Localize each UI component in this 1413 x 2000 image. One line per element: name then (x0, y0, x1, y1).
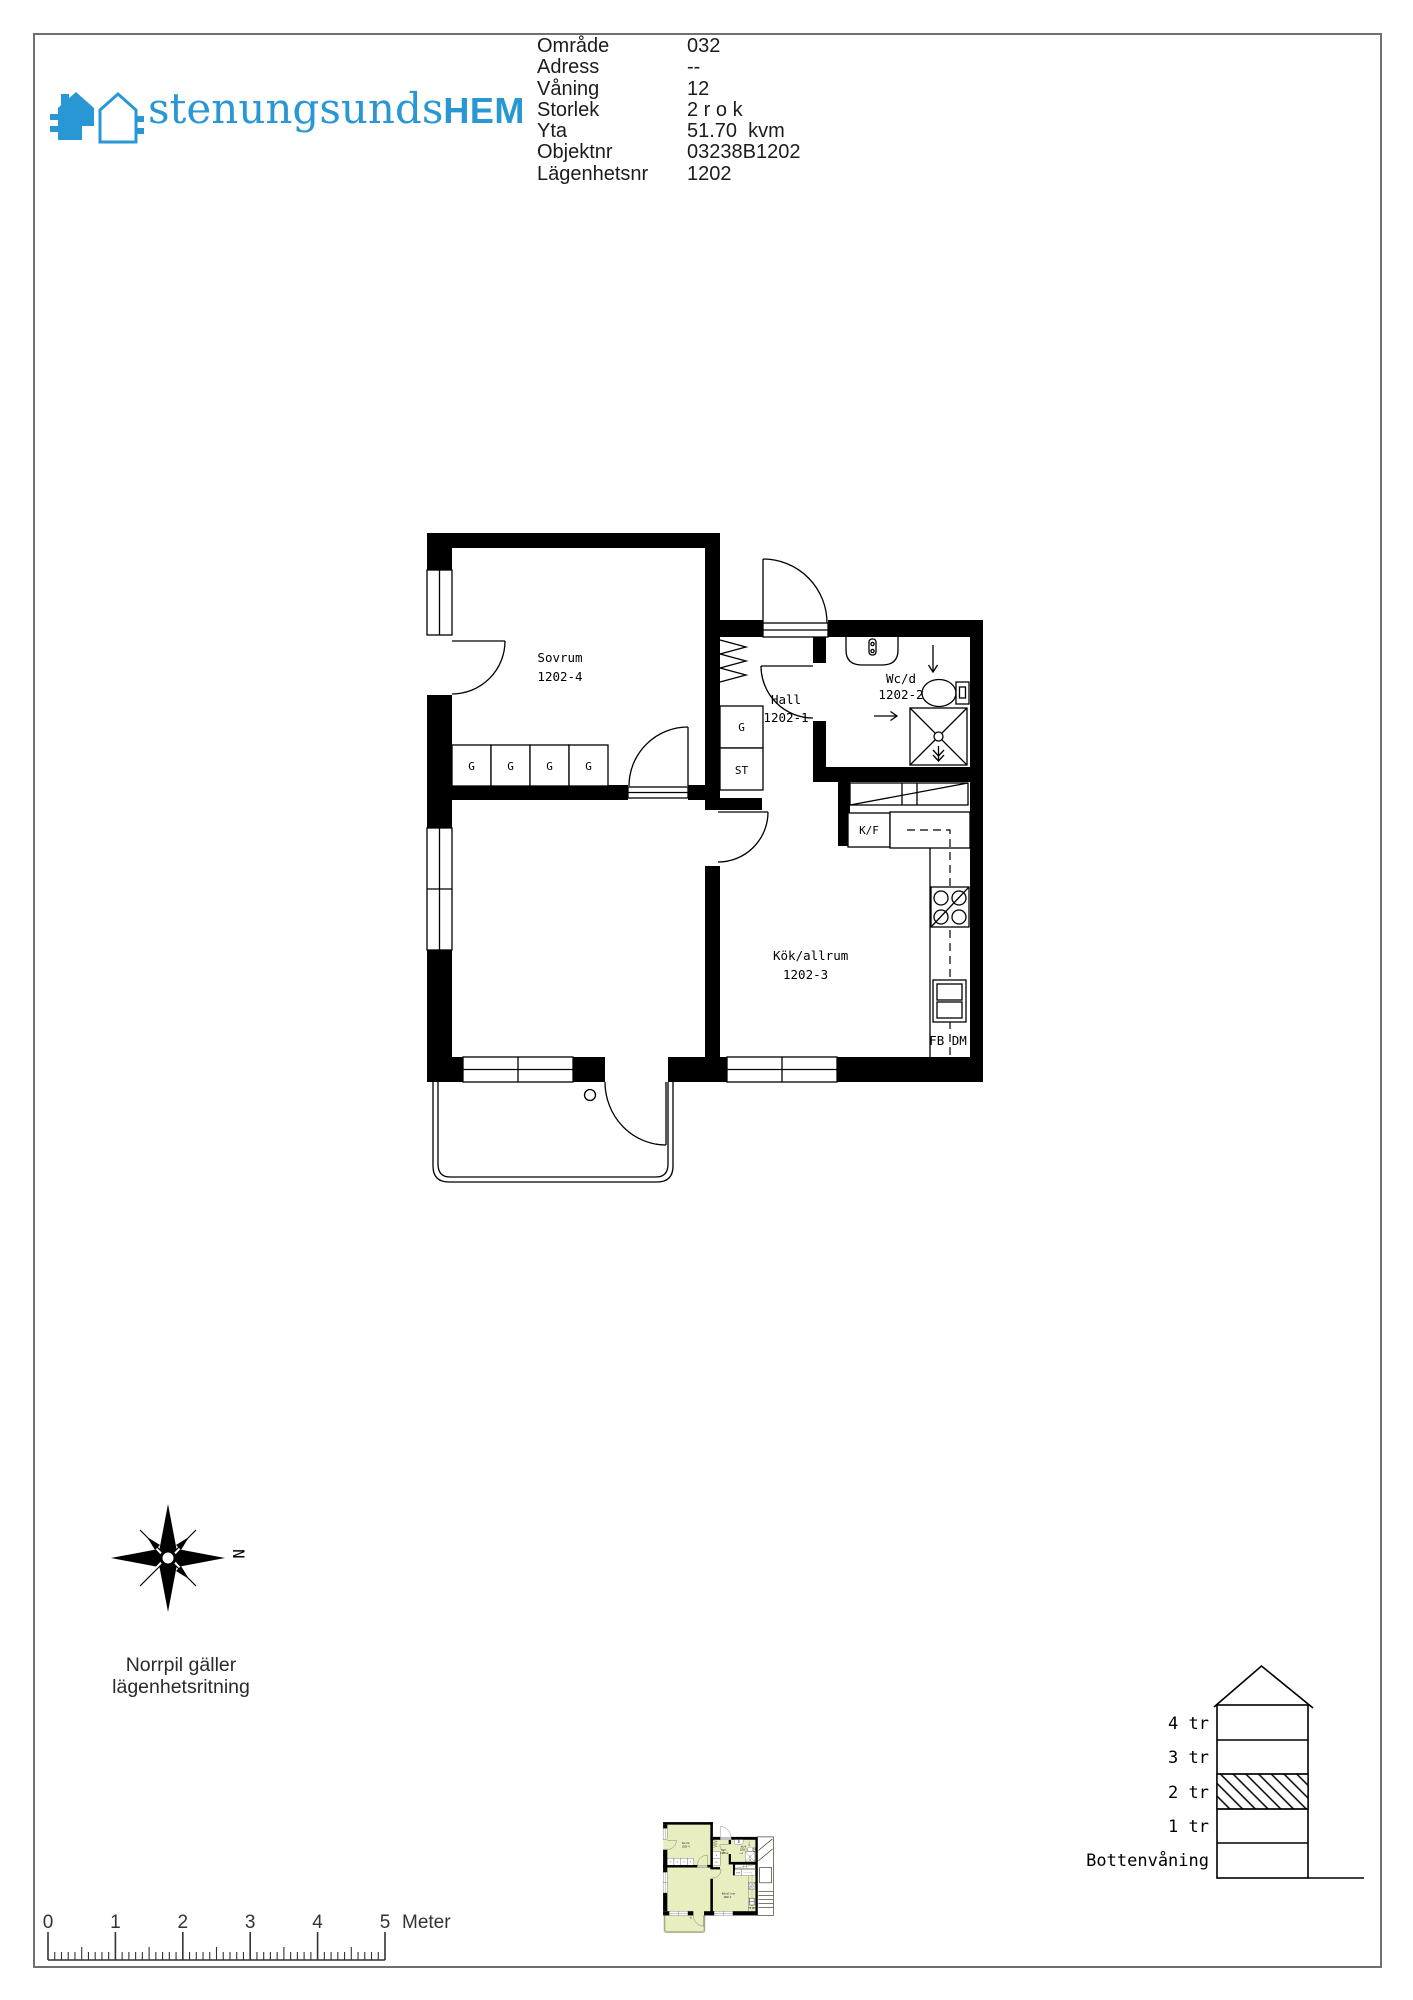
current-floor-hatched (1217, 1774, 1308, 1809)
floor-label-3tr: 3 tr (1168, 1748, 1209, 1768)
scale-bar: 0 1 2 3 4 5 Meter (43, 1912, 452, 1960)
wardrobe-label: G (546, 760, 553, 773)
door-entrance (763, 559, 827, 623)
fridge-freezer-label: K/F (859, 824, 879, 837)
balcony (433, 1082, 673, 1182)
stove-icon (931, 887, 969, 927)
window (427, 828, 452, 950)
appliance-row-label: FB DM (929, 1033, 967, 1048)
scale-number: 4 (312, 1912, 323, 1933)
arrow-right-icon (874, 712, 897, 721)
window (463, 1057, 573, 1082)
scale-number: 1 (110, 1912, 121, 1933)
floor-label-1tr: 1 tr (1168, 1817, 1209, 1837)
bathroom-number: 1202-2 (878, 687, 923, 702)
compass-caption-line2: lägenhetsritning (112, 1676, 250, 1698)
kitchen-label: Kök/allrum (773, 948, 848, 963)
door-bedroom (629, 727, 688, 786)
cleaning-closet-label: ST (735, 764, 749, 777)
kitchen-number: 1202-3 (783, 967, 828, 982)
scale-number: 0 (43, 1912, 54, 1933)
wardrobe-label: G (585, 760, 592, 773)
scale-number: 5 (380, 1912, 391, 1933)
floor-plan: Sovrum 1202-4 Hall 1202-1 Wc/d 1202-2 Kö… (427, 533, 983, 1182)
wardrobe-label: G (468, 760, 475, 773)
roof-outline (1214, 1666, 1313, 1708)
mini-site-plan (663, 1822, 773, 1933)
compass-caption-line1: Norrpil gäller (126, 1654, 237, 1676)
plan-linework (427, 559, 970, 1182)
toilet-icon (922, 680, 969, 707)
scale-number: 2 (178, 1912, 189, 1933)
scale-number: 3 (245, 1912, 256, 1933)
door-kitchen (718, 812, 768, 862)
walls (427, 533, 983, 1082)
hall-wardrobe-label: G (738, 721, 745, 734)
vent-arrow-down-icon (929, 645, 938, 672)
ruler-ticks (48, 1932, 385, 1960)
floor-labels: 4 tr 3 tr 2 tr 1 tr Bottenvåning (1086, 1714, 1209, 1871)
scale-unit: Meter (402, 1912, 451, 1933)
kitchen-bench (850, 783, 968, 805)
compass-rose: N Norrpil gäller lägenhetsritning (111, 1504, 250, 1698)
wardrobe-label: G (507, 760, 514, 773)
coat-hooks-icon (720, 640, 746, 682)
hall-label: Hall (771, 692, 801, 707)
bedroom-number: 1202-4 (537, 669, 582, 684)
window (427, 570, 452, 635)
door-bedroom-window-door (452, 641, 505, 694)
bathroom-label: Wc/d (886, 671, 916, 686)
building-elevation: 4 tr 3 tr 2 tr 1 tr Bottenvåning (1086, 1666, 1364, 1878)
mini-stairwell (758, 1837, 774, 1916)
floor-label-bottenvaning: Bottenvåning (1086, 1850, 1209, 1871)
north-letter: N (229, 1549, 248, 1559)
bedroom-label: Sovrum (537, 650, 582, 665)
drawing-canvas: Sovrum 1202-4 Hall 1202-1 Wc/d 1202-2 Kö… (0, 0, 1413, 2000)
hall-number: 1202-1 (763, 710, 808, 725)
floor-label-2tr: 2 tr (1168, 1783, 1209, 1803)
dishwasher-icon (933, 980, 966, 1022)
door-balcony (585, 1082, 667, 1145)
document-page: stenungsundsHEM Område 032 Adress -- Vån… (0, 0, 1413, 2000)
floor-label-4tr: 4 tr (1168, 1714, 1209, 1734)
window (727, 1057, 837, 1082)
shower-icon (910, 708, 967, 765)
